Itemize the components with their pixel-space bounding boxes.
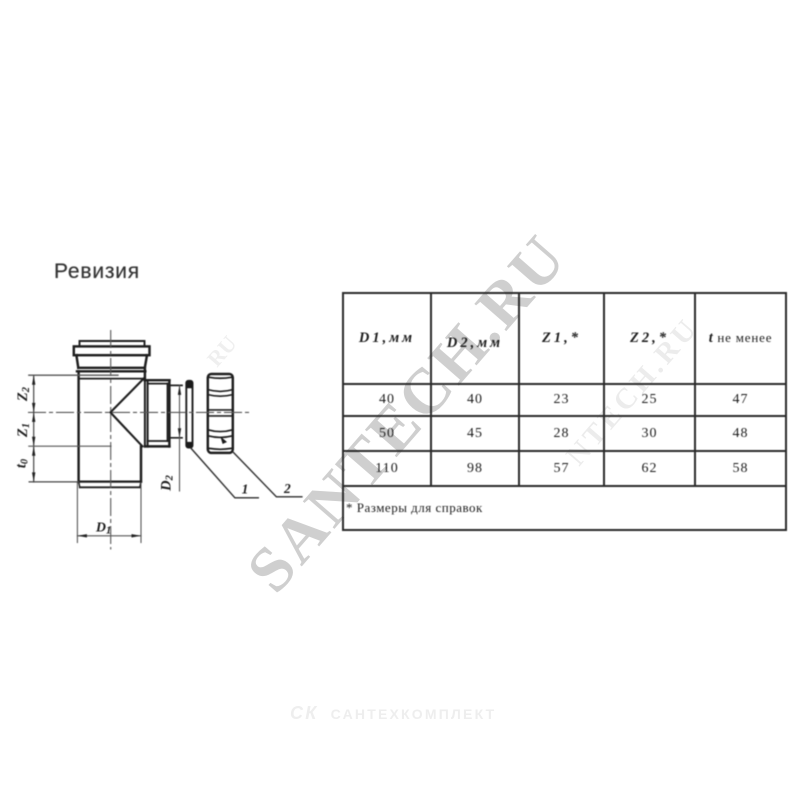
svg-text:D1: D1 — [95, 521, 111, 537]
svg-text:1: 1 — [242, 482, 249, 497]
svg-text:2: 2 — [283, 481, 291, 496]
svg-text:Z2: Z2 — [15, 386, 32, 402]
svg-text:D2: D2 — [158, 474, 175, 491]
svg-text:Z1: Z1 — [15, 423, 32, 438]
svg-text:t0: t0 — [14, 458, 31, 468]
